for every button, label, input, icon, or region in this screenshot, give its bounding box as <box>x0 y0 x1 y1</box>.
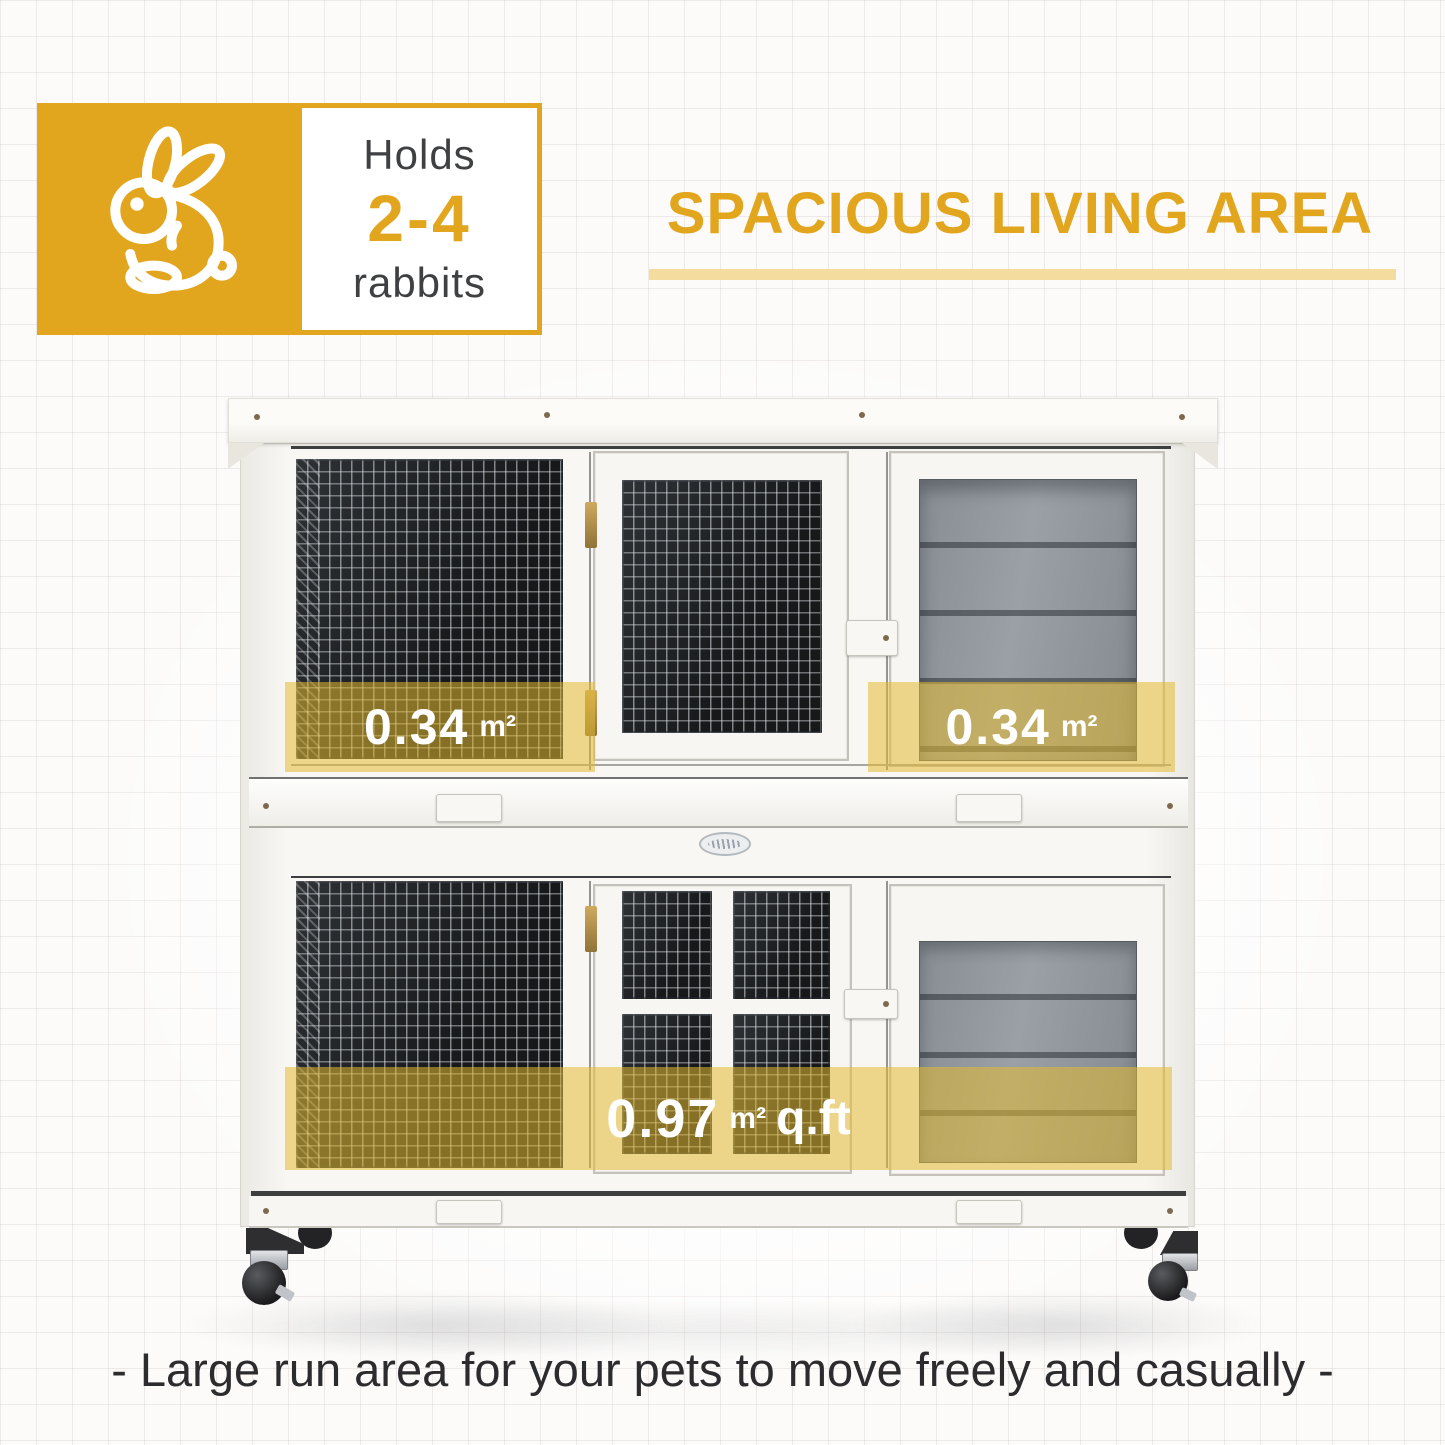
rabbit-badge <box>37 103 297 335</box>
leg-bracket-right <box>1160 1231 1198 1255</box>
roof-screw <box>254 414 260 420</box>
door-hinge <box>585 906 597 952</box>
caster-wheel-left <box>242 1261 286 1305</box>
area-overlay-upper-left: 0.34 m² <box>285 682 595 772</box>
heading-underline <box>649 269 1396 280</box>
door-hinge <box>585 502 597 548</box>
latch-screw <box>883 635 889 641</box>
area-suffix: q.ft <box>776 1091 851 1146</box>
divider-screw <box>1167 803 1173 809</box>
hutch-divider <box>249 777 1188 828</box>
area-overlay-upper-right: 0.34 m² <box>868 682 1175 772</box>
roof-screw <box>1179 414 1185 420</box>
caption: - Large run area for your pets to move f… <box>0 1342 1445 1397</box>
divider-screw <box>263 803 269 809</box>
door-pane <box>622 891 712 999</box>
brand-logo-text <box>708 839 742 849</box>
area-label: 0.97 <box>606 1088 719 1150</box>
base-screw <box>1167 1208 1173 1214</box>
door-pane <box>733 891 830 999</box>
product-infographic: Holds 2-4 rabbits SPACIOUS LIVING AREA <box>0 0 1445 1445</box>
door-latch <box>846 620 898 656</box>
latch-screw <box>883 1001 889 1007</box>
area-overlay-lower: 0.97 m² q.ft <box>285 1067 1172 1170</box>
rabbit-icon <box>67 119 267 319</box>
area-unit: m² <box>1061 710 1098 744</box>
base-board <box>249 1196 1188 1228</box>
divider-latch <box>436 794 502 822</box>
frame-line-top <box>291 446 1171 449</box>
roof-screw <box>544 412 550 418</box>
rabbit-hutch: 0.34 m² 0.34 m² 0.97 m² q.ft <box>228 395 1218 1335</box>
base-screw <box>263 1208 269 1214</box>
upper-middle-door <box>593 451 849 761</box>
brand-logo-oval <box>699 832 751 856</box>
area-unit: m² <box>479 710 516 744</box>
badge-line1: Holds <box>363 129 475 182</box>
area-label: 0.34 <box>946 698 1051 756</box>
door-latch <box>844 989 898 1019</box>
frame-line-lower-top <box>291 876 1171 878</box>
area-unit: m² <box>729 1102 766 1136</box>
area-label: 0.34 <box>364 698 469 756</box>
badge-text-box: Holds 2-4 rabbits <box>297 103 542 335</box>
badge-line2: rabbits <box>353 257 486 310</box>
roof-screw <box>859 412 865 418</box>
base-latch <box>436 1200 502 1224</box>
base-latch <box>956 1200 1022 1224</box>
door-mesh <box>622 480 822 733</box>
page-heading: SPACIOUS LIVING AREA <box>620 180 1420 247</box>
hutch-roof <box>228 398 1218 443</box>
divider-latch <box>956 794 1022 822</box>
badge-capacity: 2-4 <box>367 181 471 257</box>
